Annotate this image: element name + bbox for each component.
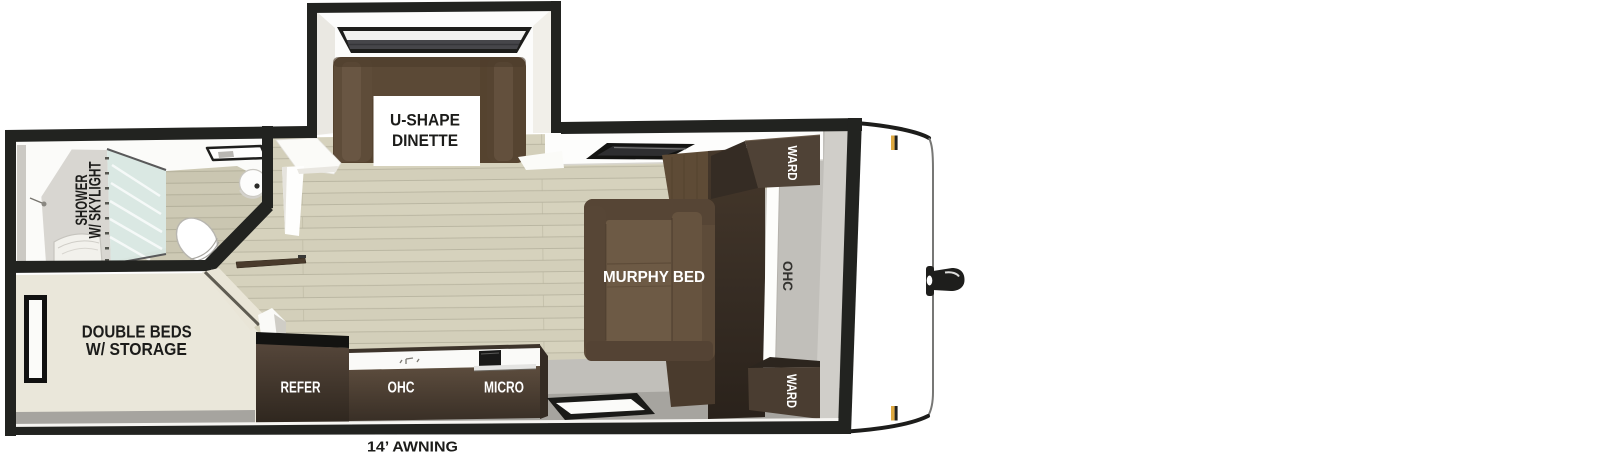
svg-text:MICRO: MICRO: [484, 380, 524, 397]
svg-text:WARD: WARD: [785, 146, 799, 181]
svg-text:14’ AWNING: 14’ AWNING: [367, 439, 458, 452]
svg-text:OHC: OHC: [780, 261, 796, 291]
svg-text:MURPHY BED: MURPHY BED: [603, 269, 705, 286]
svg-text:WARD: WARD: [784, 374, 800, 408]
svg-text:DINETTE: DINETTE: [392, 132, 458, 150]
svg-text:U-SHAPE: U-SHAPE: [390, 112, 460, 130]
svg-text:W/ STORAGE: W/ STORAGE: [86, 339, 187, 359]
svg-text:REFER: REFER: [281, 380, 321, 397]
svg-text:W/ SKYLIGHT: W/ SKYLIGHT: [86, 161, 105, 238]
svg-text:OHC: OHC: [388, 380, 415, 397]
